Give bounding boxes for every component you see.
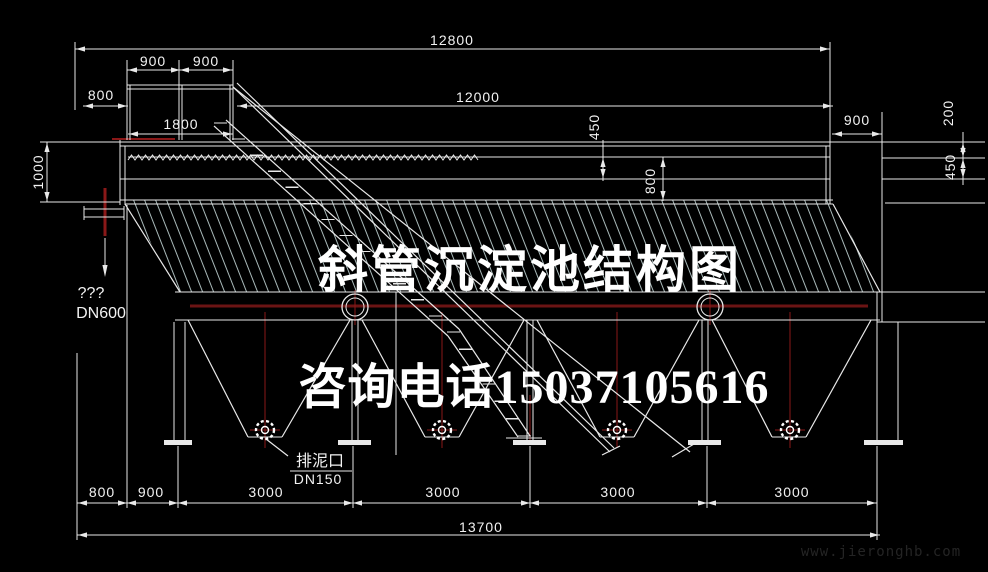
dim-left-depth: 1000 [31, 154, 45, 189]
dim-bottom-3000-2: 3000 [425, 485, 460, 499]
dim-bottom-total: 13700 [459, 520, 503, 534]
dim-platform-width: 1800 [163, 117, 198, 131]
cad-drawing-page: 12800 900 900 800 12000 1800 1000 900 45… [0, 0, 988, 572]
column-feet [164, 440, 903, 445]
dim-right-450: 450 [943, 154, 957, 180]
drain-dn-label: DN150 [294, 472, 343, 486]
dim-left-gap: 800 [88, 88, 114, 102]
drawing-title-watermark: 斜管沉淀池结构图 [318, 230, 742, 302]
dim-right-200: 200 [941, 100, 955, 126]
dim-bottom-3000-1: 3000 [248, 485, 283, 499]
dim-platform-right: 900 [193, 54, 219, 68]
drain-name-label: 排泥口 [296, 454, 344, 470]
dim-bottom-3000-4: 3000 [774, 485, 809, 499]
dim-top-total: 12800 [430, 33, 474, 47]
dim-water-800: 800 [643, 168, 657, 194]
dim-inner-length: 12000 [456, 90, 500, 104]
dim-platform-left: 900 [140, 54, 166, 68]
outlet-unknown-label: ??? [78, 286, 105, 302]
dim-right-gap: 900 [844, 113, 870, 127]
dim-bottom-3000-3: 3000 [600, 485, 635, 499]
dim-bottom-800: 800 [89, 485, 115, 499]
site-watermark: www.jieronghb.com [801, 544, 961, 560]
outlet-dn-label: DN600 [76, 306, 126, 322]
phone-watermark: 咨询电话15037105616 [298, 347, 769, 417]
dim-water-450: 450 [587, 114, 601, 140]
dim-bottom-900: 900 [138, 485, 164, 499]
